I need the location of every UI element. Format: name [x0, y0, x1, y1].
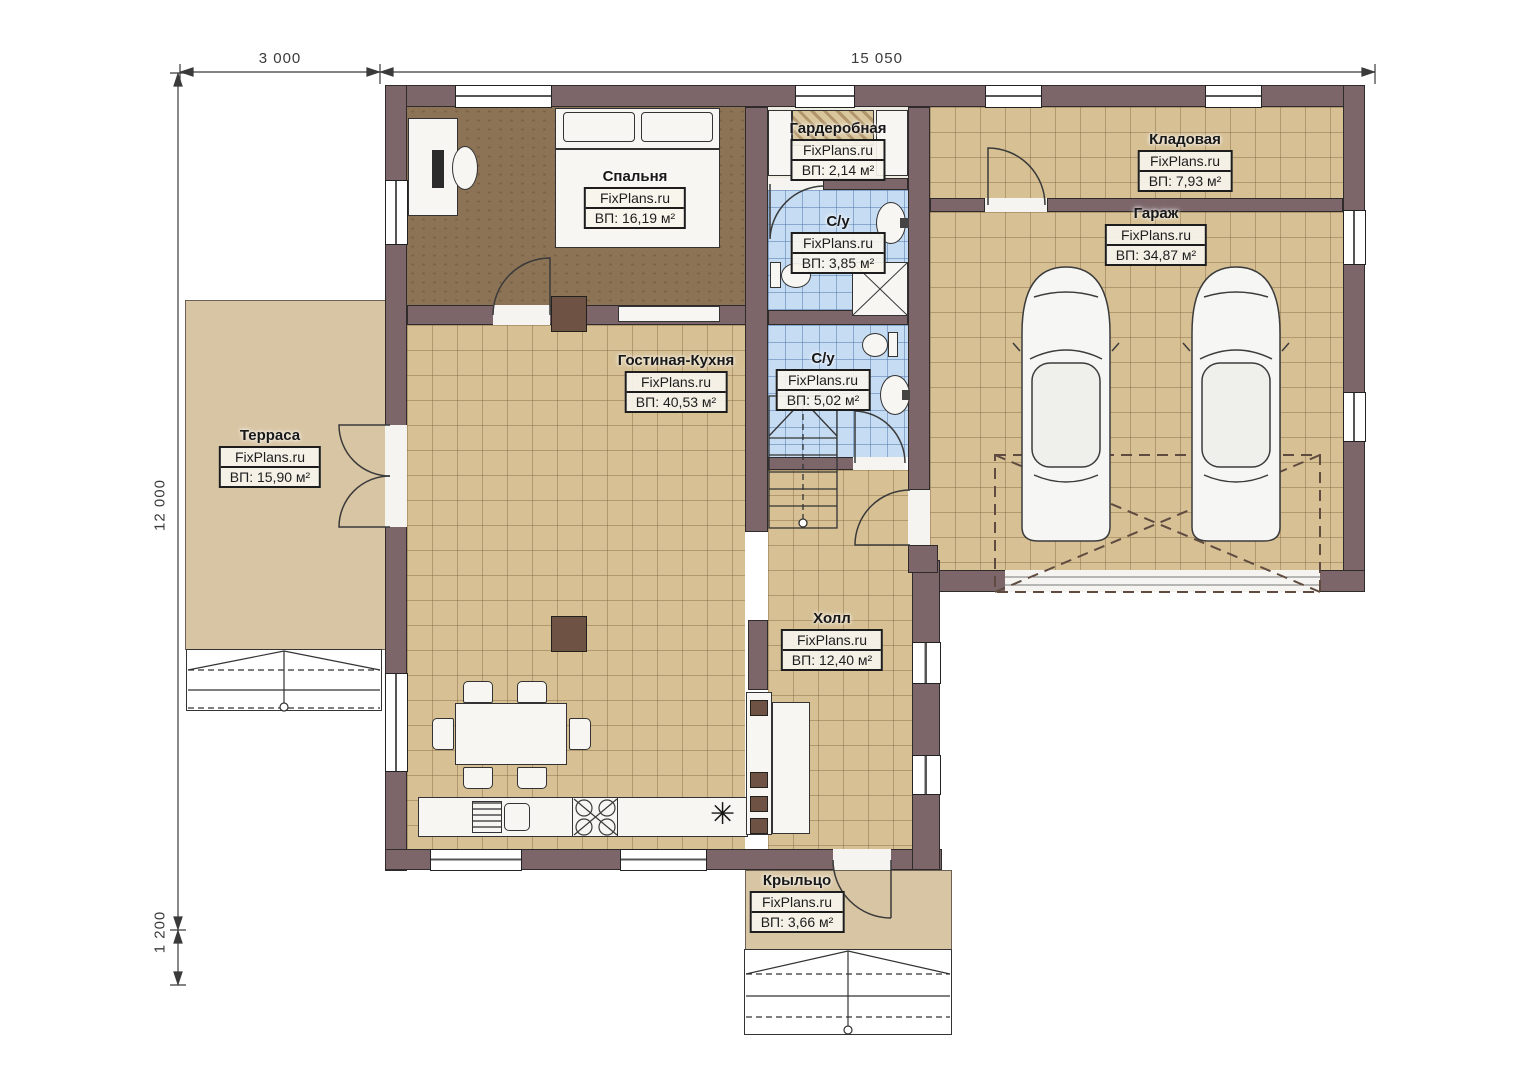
desk-chair [452, 146, 478, 190]
monitor [432, 150, 444, 188]
window [912, 642, 941, 684]
terrace-steps [186, 649, 382, 711]
bathroom-door-opening [853, 457, 905, 470]
chair [463, 767, 493, 789]
watermark-text: FixPlans.ru [793, 234, 884, 254]
watermark-text: FixPlans.ru [221, 448, 319, 468]
column [551, 296, 587, 332]
pillow [563, 112, 635, 142]
room-area: ВП: 34,87 м² [1107, 246, 1205, 264]
room-area: ВП: 2,14 м² [793, 161, 884, 179]
chair [463, 681, 493, 703]
room-name: С/у [791, 213, 886, 230]
dining-table [455, 703, 567, 765]
chair [517, 767, 547, 789]
porch-steps [744, 949, 952, 1035]
watermark-box: FixPlans.ru ВП: 3,66 м² [750, 891, 845, 933]
cabinet-box [750, 796, 768, 812]
storage-door-opening [985, 198, 1047, 212]
room-name: Гараж [1105, 205, 1207, 222]
watermark-text: FixPlans.ru [783, 631, 881, 651]
hall-garage-door-opening [908, 490, 930, 545]
kitchen-star-icon: ✳ [710, 800, 735, 830]
room-area: ВП: 12,40 м² [783, 651, 881, 669]
toilet-tank [770, 262, 781, 288]
wall [745, 107, 768, 532]
room-label-garage: Гараж FixPlans.ru ВП: 34,87 м² [1105, 205, 1207, 266]
window [1343, 210, 1366, 265]
dimension-left-bottom: 1 200 [152, 911, 169, 954]
room-area: ВП: 16,19 м² [586, 209, 684, 227]
window [455, 85, 552, 108]
wall [748, 620, 768, 690]
watermark-text: FixPlans.ru [1107, 226, 1205, 246]
column [551, 616, 587, 652]
room-name: Крыльцо [750, 872, 845, 889]
room-name: Холл [781, 610, 883, 627]
room-name: Кладовая [1138, 131, 1233, 148]
chair [432, 718, 454, 750]
watermark-box: FixPlans.ru ВП: 15,90 м² [219, 446, 321, 488]
watermark-text: FixPlans.ru [778, 371, 869, 391]
room-area: ВП: 15,90 м² [221, 468, 319, 486]
watermark-text: FixPlans.ru [627, 373, 725, 393]
window [385, 673, 408, 772]
watermark-text: FixPlans.ru [793, 141, 884, 161]
room-area: ВП: 7,93 м² [1140, 172, 1231, 190]
dimension-left-main: 12 000 [152, 479, 169, 531]
cabinet-box [750, 772, 768, 788]
dimension-top-right: 15 050 [851, 50, 903, 67]
room-label-bath-bottom: С/у FixPlans.ru ВП: 5,02 м² [776, 350, 871, 411]
window [985, 85, 1042, 108]
floor-plan: 3 000 15 050 12 000 1 200 [0, 0, 1528, 1080]
cabinet-box [750, 818, 768, 834]
entry-door-opening [833, 849, 891, 870]
wall [912, 560, 940, 870]
room-label-bedroom: Спальня FixPlans.ru ВП: 16,19 м² [584, 168, 686, 229]
room-area: ВП: 3,85 м² [793, 254, 884, 272]
storage-floor [930, 107, 1343, 198]
wall [930, 198, 985, 212]
stove [572, 797, 618, 837]
room-label-hall: Холл FixPlans.ru ВП: 12,40 м² [781, 610, 883, 671]
room-area: ВП: 3,66 м² [752, 913, 843, 931]
watermark-box: FixPlans.ru ВП: 34,87 м² [1105, 224, 1207, 266]
window [795, 85, 855, 108]
room-label-bath-top: С/у FixPlans.ru ВП: 3,85 м² [791, 213, 886, 274]
faucet [902, 390, 910, 400]
room-name: Терраса [219, 427, 321, 444]
watermark-box: FixPlans.ru ВП: 40,53 м² [625, 371, 727, 413]
blanket-line [556, 148, 719, 150]
terrace-door-opening [385, 425, 407, 527]
faucet [900, 218, 909, 228]
wall [908, 107, 930, 490]
wall [768, 457, 858, 470]
watermark-box: FixPlans.ru ВП: 12,40 м² [781, 629, 883, 671]
room-label-storage: Кладовая FixPlans.ru ВП: 7,93 м² [1138, 131, 1233, 192]
watermark-text: FixPlans.ru [1140, 152, 1231, 172]
room-label-living-kitchen: Гостиная-Кухня FixPlans.ru ВП: 40,53 м² [618, 352, 735, 413]
cabinet-box [750, 700, 768, 716]
bedroom-door-opening [493, 305, 550, 325]
room-area: ВП: 5,02 м² [778, 391, 869, 409]
watermark-box: FixPlans.ru ВП: 3,85 м² [791, 232, 886, 274]
sink-drainer [472, 801, 502, 833]
room-name: С/у [776, 350, 871, 367]
room-label-wardrobe: Гардеробная FixPlans.ru ВП: 2,14 м² [789, 120, 886, 181]
room-name: Гостиная-Кухня [618, 352, 735, 369]
watermark-text: FixPlans.ru [752, 893, 843, 913]
window [430, 849, 522, 871]
room-name: Гардеробная [789, 120, 886, 137]
dresser [618, 306, 720, 322]
room-label-terrace: Терраса FixPlans.ru ВП: 15,90 м² [219, 427, 321, 488]
chair [569, 718, 591, 750]
room-area: ВП: 40,53 м² [627, 393, 725, 411]
watermark-box: FixPlans.ru ВП: 5,02 м² [776, 369, 871, 411]
chair [517, 681, 547, 703]
hall-cabinet [772, 702, 810, 834]
kitchen-sink [504, 803, 530, 831]
toilet-tank [888, 332, 898, 357]
window [912, 755, 941, 795]
closet-shelf [768, 110, 792, 176]
window [620, 849, 707, 871]
room-name: Спальня [584, 168, 686, 185]
watermark-text: FixPlans.ru [586, 189, 684, 209]
garage-door-opening [1005, 570, 1320, 592]
watermark-box: FixPlans.ru ВП: 16,19 м² [584, 187, 686, 229]
wall [1343, 85, 1365, 592]
watermark-box: FixPlans.ru ВП: 7,93 м² [1138, 150, 1233, 192]
window [1343, 392, 1366, 442]
window [385, 180, 408, 245]
dimension-top-left: 3 000 [259, 50, 302, 67]
pillow [641, 112, 713, 142]
wall [908, 545, 938, 573]
window [1205, 85, 1262, 108]
watermark-box: FixPlans.ru ВП: 2,14 м² [791, 139, 886, 181]
room-label-porch: Крыльцо FixPlans.ru ВП: 3,66 м² [750, 872, 845, 933]
